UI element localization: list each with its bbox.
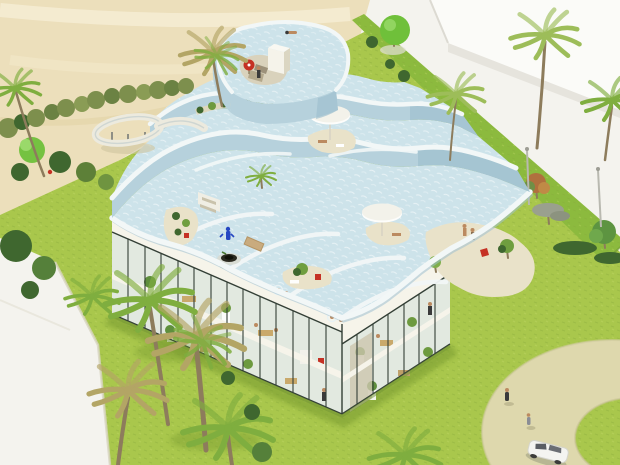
red-box — [315, 274, 321, 280]
rendering-canvas — [0, 0, 620, 465]
bush-row — [553, 241, 597, 255]
red-planter — [184, 233, 189, 238]
flower — [48, 170, 52, 174]
round-tree — [380, 15, 410, 45]
lift-core — [268, 44, 290, 74]
person-lying — [285, 31, 297, 35]
scene — [0, 0, 620, 465]
